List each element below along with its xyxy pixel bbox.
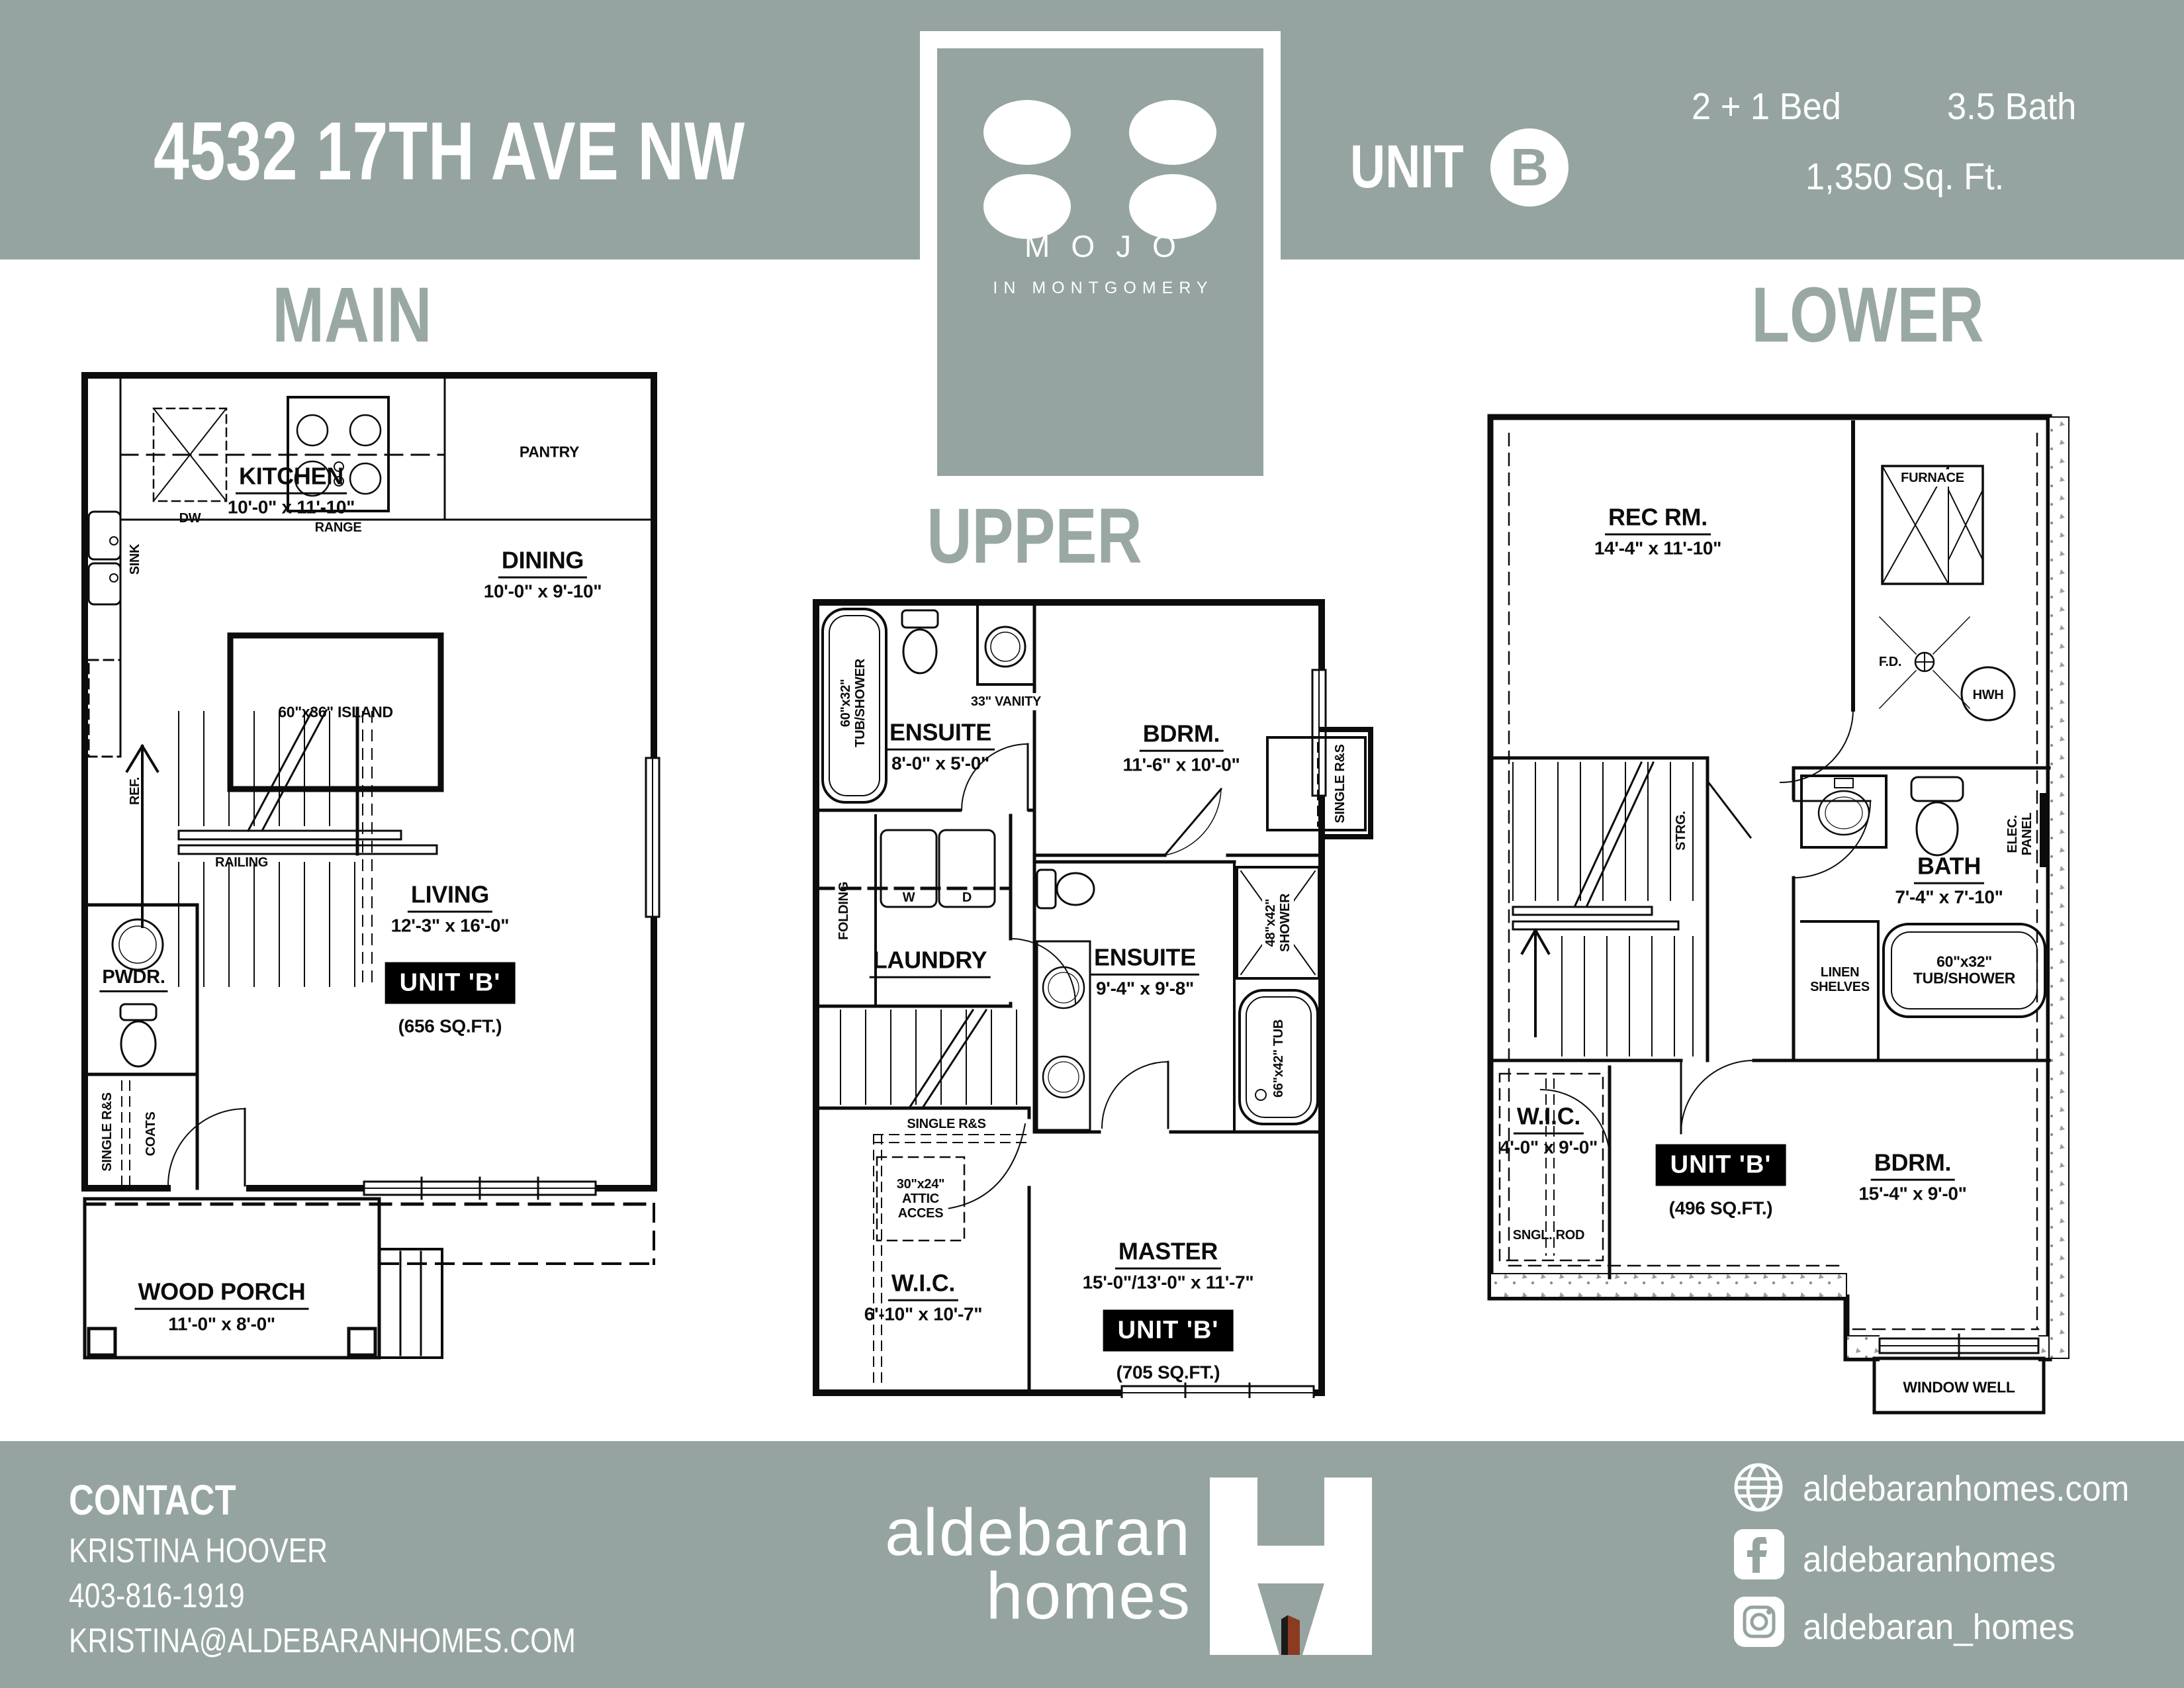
address-title: 4532 17TH AVE NW	[154, 105, 745, 199]
label-attic: 30"x24"ATTICACCES	[893, 1176, 948, 1222]
label-washer: W	[903, 890, 915, 905]
label-wic-rs: SINGLE R&S	[907, 1117, 985, 1131]
label-main-sqft: (656 SQ.FT.)	[398, 1017, 502, 1037]
label-laundry: LAUNDRY	[870, 947, 991, 978]
label-dryer: D	[962, 890, 972, 905]
brand-name-top: aldebaran	[761, 1501, 1191, 1564]
label-strg: STRG.	[1672, 807, 1690, 855]
globe-icon	[1733, 1462, 1784, 1513]
floor-title-lower: LOWER	[1751, 270, 1983, 360]
label-kitchen: KITCHEN	[236, 463, 347, 494]
bath-count: 3.5 Bath	[1947, 85, 2076, 128]
label-lower-bdrm-dims: 15'-4" x 9'-0"	[1858, 1184, 1966, 1205]
unit-label: UNIT	[1350, 132, 1464, 202]
label-upper-tubshower: 60"x32"TUB/SHOWER	[839, 659, 868, 747]
contact-name: KRISTINA HOOVER	[69, 1531, 328, 1571]
label-bath-dims: 7'-4" x 7'-10"	[1895, 888, 2003, 908]
label-folding: FOLDING	[837, 882, 851, 940]
aldebaran-h-logo-icon	[1210, 1477, 1372, 1655]
facebook-handle[interactable]: aldebaranhomes	[1803, 1539, 2056, 1580]
unit-badge-lower: UNIT 'B'	[1656, 1145, 1786, 1186]
label-railing: RAILING	[215, 855, 268, 870]
floor-plan-upper: 60"x32"TUB/SHOWER 33" VANITY ENSUITE 8'-…	[811, 571, 1373, 1398]
label-master: MASTER	[1115, 1239, 1221, 1270]
label-dining-dims: 10'-0" x 9'-10"	[484, 582, 602, 602]
floor-plan-lower: REC RM. 14'-4" x 11'-10" FURNACE F.D. HW…	[1482, 397, 2091, 1417]
label-upper-wic-dims: 6'-10" x 10'-7"	[864, 1305, 983, 1325]
label-pwdr: PWDR.	[99, 967, 167, 992]
label-porch: WOOD PORCH	[135, 1279, 309, 1310]
label-porch-dims: 11'-0" x 8'-0"	[168, 1315, 275, 1335]
label-sink: SINK	[128, 544, 142, 575]
brochure-page: 4532 17TH AVE NW UNIT B 2 + 1 Bed 3.5 Ba…	[0, 0, 2184, 1688]
floor-title-main: MAIN	[272, 270, 432, 360]
label-master-dims: 15'-0"/13'-0" x 11'-7"	[1083, 1273, 1254, 1293]
label-hwh: HWH	[1973, 688, 2004, 702]
mojo-circle-icon	[1129, 100, 1216, 165]
label-ensuite2: ENSUITE	[1091, 945, 1199, 976]
label-rec: REC RM.	[1605, 504, 1711, 536]
instagram-handle[interactable]: aldebaran_homes	[1803, 1607, 2075, 1648]
label-ensuite2-dims: 9'-4" x 9'-8"	[1096, 979, 1194, 1000]
unit-letter: B	[1490, 128, 1569, 207]
label-lower-sqft: (496 SQ.FT.)	[1669, 1199, 1773, 1219]
label-ensuite1: ENSUITE	[886, 720, 995, 751]
floor-plan-main-drawing	[79, 367, 662, 1390]
footer-band: CONTACT KRISTINA HOOVER 403-816-1919 KRI…	[0, 1441, 2184, 1688]
label-upper-sqft: (705 SQ.FT.)	[1116, 1363, 1220, 1383]
label-closet-rs: SINGLE R&S	[1333, 744, 1347, 823]
label-pantry: PANTRY	[520, 444, 579, 460]
mojo-circle-icon	[983, 100, 1071, 165]
label-linen: LINENSHELVES	[1810, 965, 1870, 994]
label-island: 60"x36" ISLAND	[278, 704, 393, 720]
unit-letter-circle: B	[1490, 128, 1569, 207]
bed-count: 2 + 1 Bed	[1692, 85, 1841, 128]
mojo-logo: MOJO IN MONTGOMERY	[920, 31, 1281, 493]
floor-plan-main: DW RANGE PANTRY KITCHEN 10'-0" x 11'-10"…	[79, 367, 662, 1390]
contact-email[interactable]: KRISTINA@ALDEBARANHOMES.COM	[69, 1621, 576, 1661]
label-ensuite1-dims: 8'-0" x 5'-0"	[891, 754, 989, 774]
label-elec-panel: ELEC.PANEL	[2005, 813, 2034, 856]
label-window-well: WINDOW WELL	[1903, 1379, 2015, 1395]
label-rec-dims: 14'-4" x 11'-10"	[1594, 539, 1721, 559]
mojo-name: MOJO	[937, 228, 1263, 264]
contact-heading: CONTACT	[69, 1476, 236, 1524]
label-dw: DW	[179, 511, 201, 526]
label-dining: DINING	[498, 547, 587, 579]
label-lower-bdrm: BDRM.	[1871, 1150, 1955, 1181]
label-single-rs: SINGLE R&S	[100, 1092, 114, 1171]
label-fd: F.D.	[1875, 653, 1905, 671]
label-kitchen-dims: 10'-0" x 11'-10"	[228, 498, 355, 518]
brand-name-bottom: homes	[761, 1564, 1191, 1628]
label-upper-wic: W.I.C.	[888, 1270, 958, 1301]
label-living: LIVING	[408, 882, 492, 913]
contact-phone[interactable]: 403-816-1919	[69, 1576, 245, 1616]
label-lower-wic-dims: 4'-0" x 9'-0"	[1500, 1138, 1598, 1158]
label-ref: REF.	[128, 777, 142, 805]
instagram-icon[interactable]	[1734, 1597, 1784, 1647]
label-sngl-rod: SNGL. ROD	[1513, 1228, 1584, 1243]
floor-title-upper: UPPER	[927, 491, 1142, 581]
website-link[interactable]: aldebaranhomes.com	[1803, 1468, 2129, 1509]
label-tub2: 66"x42" TUB	[1270, 1015, 1287, 1102]
label-bath: BATH	[1914, 853, 1984, 884]
sqft-total: 1,350 Sq. Ft.	[1805, 155, 2004, 199]
unit-badge-upper: UNIT 'B'	[1103, 1310, 1234, 1352]
label-living-dims: 12'-3" x 16'-0"	[391, 916, 510, 937]
label-furnace: FURNACE	[1897, 469, 1968, 487]
label-range: RANGE	[315, 520, 362, 535]
unit-badge-main: UNIT 'B'	[385, 962, 516, 1004]
mojo-tagline: IN MONTGOMERY	[937, 279, 1263, 298]
label-upper-bdrm-dims: 11'-6" x 10'-0"	[1122, 755, 1240, 776]
label-shower: 48"x42"SHOWER	[1262, 890, 1294, 956]
label-coats: COATS	[144, 1111, 158, 1156]
label-lower-wic: W.I.C.	[1514, 1103, 1584, 1135]
label-lower-tubshower: 60"x32"TUB/SHOWER	[1913, 954, 2015, 988]
label-upper-bdrm: BDRM.	[1140, 721, 1224, 752]
facebook-icon[interactable]	[1734, 1529, 1784, 1579]
label-vanity: 33" VANITY	[967, 693, 1045, 710]
